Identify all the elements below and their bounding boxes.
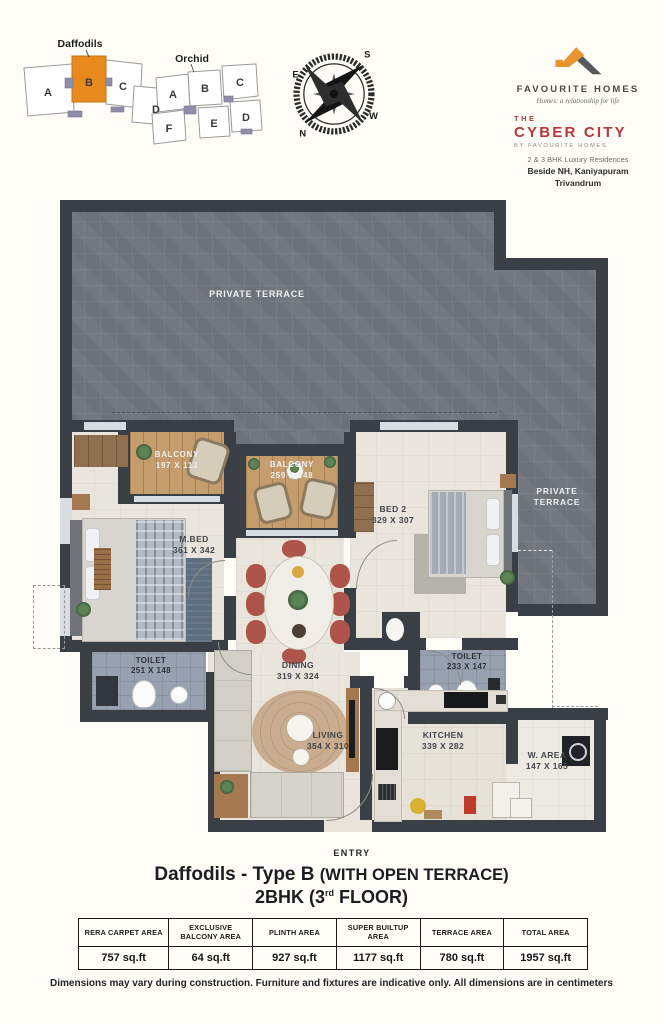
dining-plate [292,566,304,578]
room-label-private-terrace-side: PRIVATE TERRACE [522,486,592,509]
compass-south: S [364,50,370,60]
disclaimer-text: Dimensions may vary during construction.… [0,978,663,989]
area-table-value: 757 sq.ft [79,947,168,969]
title-qualifier: (WITH OPEN TERRACE) [320,866,509,884]
room-label-balcony2: BALCONY259 X 148 [248,460,336,481]
bed-bench [94,548,111,590]
pillow [486,534,500,566]
area-table: RERA CARPET AREA 757 sq.ft EXCLUSIVE BAL… [78,918,588,970]
area-table-value: 64 sq.ft [169,947,252,969]
project-the: THE [514,114,642,123]
compass-north: N [299,129,306,139]
brand-tagline: Homes: a relationship for life [498,97,658,105]
dining-chair [330,620,350,644]
keyplan-unit-label: B [201,83,209,95]
room-label-dining: DINING319 X 324 [258,660,338,682]
favourite-homes-logo-icon [550,40,606,76]
project-description: 2 & 3 BHK Luxury Residences [498,155,658,164]
bed-headboard [70,520,82,636]
area-table-column: RERA CARPET AREA 757 sq.ft [79,919,168,969]
project-name: CYBER CITY [514,124,642,141]
projection-outline [33,585,65,649]
room-label-bed2: BED 2329 X 307 [356,504,430,526]
area-table-header: EXCLUSIVE BALCONY AREA [169,919,252,947]
room-label-toilet1: TOILET251 X 148 [120,656,182,677]
area-table-header: TOTAL AREA [504,919,587,947]
area-table-column: PLINTH AREA 927 sq.ft [252,919,336,969]
bed-blanket [430,492,466,574]
area-table-header: RERA CARPET AREA [79,919,168,947]
bedside-table [500,474,516,488]
title-floor-ordinal: rd [325,888,334,898]
keyplan-unit-label: D [242,112,250,124]
dining-chair [246,592,266,616]
room-label-mbed: M.BED361 X 342 [156,534,232,556]
area-table-value: 1177 sq.ft [337,947,420,969]
compass-west: W [369,111,378,121]
stove [376,728,398,770]
key-plan: A B C D A B C F E D Daffodils Orchid [10,34,268,156]
utility-sink [510,798,532,818]
area-table-value: 1957 sq.ft [504,947,587,969]
project-address-2: Trivandrum [498,178,658,188]
brand-name: FAVOURITE HOMES [498,84,658,95]
keyplan-unit-label: F [166,123,173,135]
keyplan-building-orchid: Orchid [175,53,209,65]
wardrobe [74,435,128,467]
compass-rose: S E N W [282,42,386,146]
dining-chair [246,564,266,588]
toilet-sink [170,686,188,704]
toilet-wc [132,680,156,708]
dining-plate [290,622,308,640]
room-label-kitchen: KITCHEN339 X 282 [404,730,482,752]
room-label-living: LIVING354 X 310 [296,730,360,752]
room-label-toilet2: TOILET233 X 147 [434,652,500,673]
private-terrace-main [68,210,498,430]
keyplan-unit-label: A [44,87,52,99]
area-table-column: TERRACE AREA 780 sq.ft [420,919,504,969]
area-table-value: 927 sq.ft [253,947,336,969]
room-label-private-terrace: PRIVATE TERRACE [202,288,312,300]
project-address-1: Beside NH, Kaniyapuram [498,166,658,176]
keyplan-unit-label: D [152,104,160,116]
floor-plan: PRIVATE TERRACE PRIVATE TERRACE BALCONY1… [52,198,618,846]
project-byline: BY FAVOURITE HOMES [514,143,642,149]
title-main: Daffodils - Type B [154,864,314,885]
area-table-value: 780 sq.ft [421,947,504,969]
plant [220,780,234,794]
kitchen-appliance [496,695,506,704]
private-terrace-side [518,430,596,606]
area-table-column: TOTAL AREA 1957 sq.ft [503,919,587,969]
title-floor: FLOOR) [334,887,408,907]
compass-east: E [292,69,298,79]
keyplan-unit-label: C [119,81,127,93]
area-table-header: TERRACE AREA [421,919,504,947]
dining-centerpiece [288,590,308,610]
room-label-balcony1: BALCONY197 X 113 [134,450,220,471]
title-bhk: 2BHK (3 [255,887,325,907]
cooktop [444,692,488,708]
brand-block: FAVOURITE HOMES Homes: a relationship fo… [498,40,658,188]
entry-label: ENTRY [300,848,404,858]
plant [76,602,91,617]
kitchen-item-red [464,796,476,814]
keyplan-unit-label: A [169,89,177,101]
area-table-column: EXCLUSIVE BALCONY AREA 64 sq.ft [168,919,252,969]
basket [378,784,396,800]
plan-title: Daffodils - Type B (WITH OPEN TERRACE) 2… [0,864,663,908]
room-label-warea: W. AREA147 X 165 [504,750,590,772]
shower [96,676,118,706]
dining-chair [246,620,266,644]
keyplan-unit-label: C [236,77,244,89]
area-table-header: PLINTH AREA [253,919,336,947]
dining-chair [330,564,350,588]
area-table-header: SUPER BUILTUP AREA [337,919,420,947]
kitchen-item-wood [424,810,442,819]
area-table-column: SUPER BUILTUP AREA 1177 sq.ft [336,919,420,969]
keyplan-unit-label: E [210,118,217,130]
plant [500,570,515,585]
pillow [486,498,500,530]
bedside-table [72,494,90,510]
wash-basin [386,618,404,641]
private-terrace-main [498,264,596,430]
entry-threshold [324,820,372,832]
keyplan-building-daffodils: Daffodils [58,38,103,50]
keyplan-unit-label: B [85,77,93,89]
